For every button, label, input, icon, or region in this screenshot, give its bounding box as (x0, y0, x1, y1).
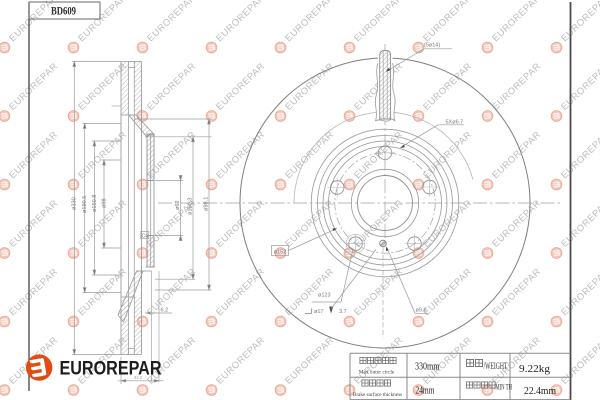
svg-text:Max outer circle: Max outer circle (359, 370, 395, 376)
svg-text:ø330: ø330 (72, 197, 78, 210)
svg-text:Brake surface thickness: Brake surface thickness (353, 391, 402, 398)
svg-text:ø62: ø62 (175, 200, 181, 210)
svg-text:24mm: 24mm (416, 385, 435, 397)
svg-text:3.7: 3.7 (339, 309, 347, 315)
svg-text:ø160.3: ø160.3 (188, 198, 194, 215)
svg-text:C4: C4 (142, 233, 149, 239)
svg-text:ø98.1: ø98.1 (204, 197, 210, 211)
svg-text:(5ø14): (5ø14) (424, 42, 440, 48)
svg-text:/WEIGHT: /WEIGHT (484, 362, 508, 372)
svg-text:BD609: BD609 (51, 6, 76, 18)
svg-text:ø150.8: ø150.8 (92, 195, 98, 212)
svg-text:ø17: ø17 (314, 309, 323, 315)
svg-text:EUROREPAR: EUROREPAR (60, 358, 162, 380)
svg-text:ø123: ø123 (318, 293, 331, 299)
svg-text:9.22kg: 9.22kg (519, 363, 551, 375)
svg-text:22.4mm: 22.4mm (524, 385, 557, 397)
svg-text:ø98: ø98 (102, 198, 108, 208)
svg-text:/MIN TH: /MIN TH (494, 382, 512, 392)
svg-text:330mm: 330mm (415, 361, 440, 373)
svg-text:6.2: 6.2 (161, 308, 169, 314)
svg-text:ø152: ø152 (274, 249, 287, 255)
svg-text:ø190.5: ø190.5 (82, 196, 88, 213)
svg-text:ø9.6: ø9.6 (416, 308, 427, 314)
